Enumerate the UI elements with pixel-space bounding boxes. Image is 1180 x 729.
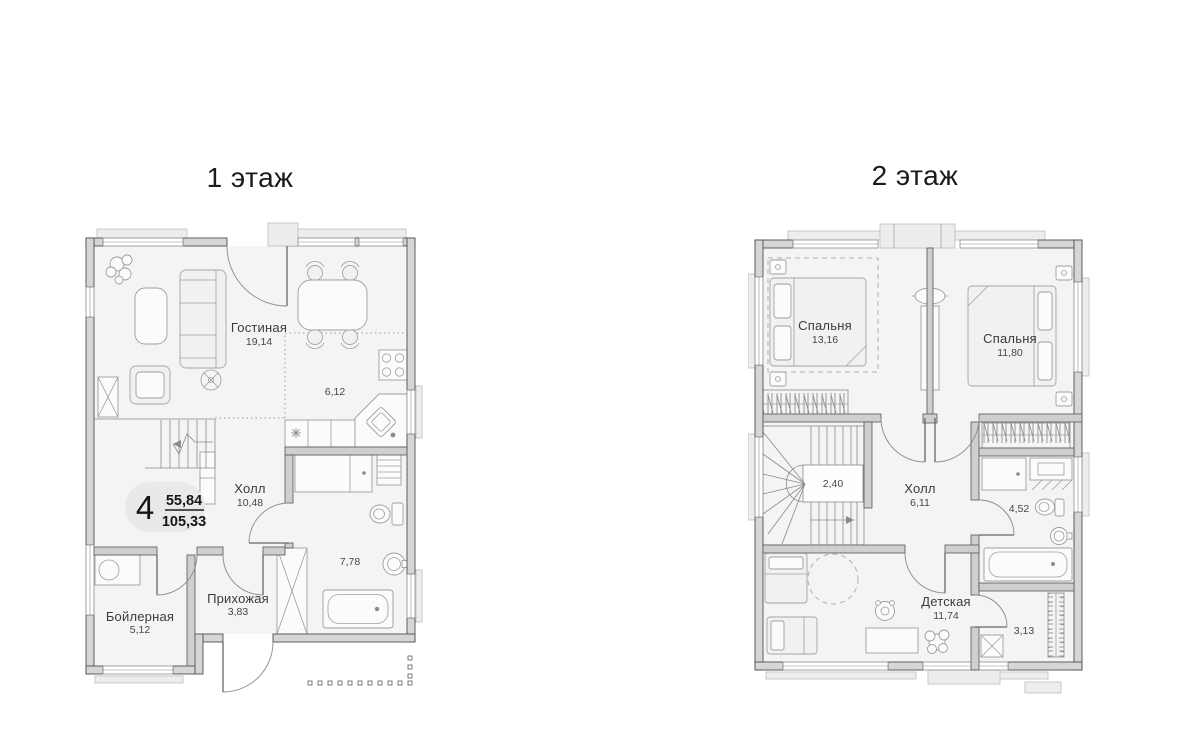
svg-text:Холл: Холл [904, 481, 935, 496]
page: 1 этаж 2 этаж [0, 0, 1180, 729]
wardrobe [98, 377, 118, 417]
svg-text:Холл: Холл [234, 481, 265, 496]
floor1-plan: 4 55,84 105,33 Гостиная 19,14 6,12 Холл … [83, 222, 423, 697]
room-closet-label: 3,13 [1014, 625, 1035, 637]
svg-text:19,14: 19,14 [246, 336, 272, 348]
stove [379, 350, 407, 380]
bed [765, 553, 807, 603]
room-kitchen-label: 6,12 [325, 386, 346, 398]
water-heater [95, 555, 140, 585]
svg-text:Прихожая: Прихожая [207, 591, 269, 606]
wardrobe [981, 635, 1003, 657]
towel-rack [377, 453, 401, 485]
washing-machine-counter [982, 458, 1026, 490]
stool [876, 601, 895, 621]
kitchen-counter [285, 420, 355, 447]
floor1-title: 1 этаж [130, 162, 370, 194]
wardrobe [277, 548, 307, 634]
floor2-plan: Спальня 13,16 Спальня 11,80 2,40 Холл 6,… [748, 222, 1090, 697]
floor2-title: 2 этаж [795, 160, 1035, 192]
svg-text:13,16: 13,16 [812, 334, 838, 346]
sofa [180, 270, 226, 368]
stairs-area-label: 2,40 [823, 478, 844, 490]
svg-text:5,12: 5,12 [130, 624, 151, 636]
bathtub [323, 590, 393, 628]
apartment-badge: 4 55,84 105,33 [125, 482, 206, 532]
bathtub [984, 548, 1072, 581]
svg-text:3,83: 3,83 [228, 606, 249, 618]
chimney [268, 223, 298, 246]
svg-text:Гостиная: Гостиная [231, 320, 287, 335]
desk [866, 628, 918, 653]
room-hall-label: Холл 10,48 [234, 481, 265, 509]
coffee-table [135, 288, 167, 344]
svg-text:11,74: 11,74 [933, 610, 959, 622]
toilet [1036, 499, 1065, 516]
badge-rooms-count: 4 [136, 489, 154, 526]
svg-text:Спальня: Спальня [983, 331, 1037, 346]
hob-icon [291, 428, 301, 438]
porch-dots [308, 656, 412, 685]
svg-text:Детская: Детская [921, 594, 971, 609]
svg-text:10,48: 10,48 [237, 497, 263, 509]
svg-text:6,11: 6,11 [910, 497, 930, 509]
entrance-door [223, 642, 273, 692]
svg-text:11,80: 11,80 [997, 347, 1023, 359]
wardrobe [982, 423, 1070, 448]
svg-text:Бойлерная: Бойлерная [106, 609, 174, 624]
washing-machine-counter [295, 455, 372, 492]
badge-living-area: 55,84 [166, 493, 202, 509]
armchair [130, 366, 170, 404]
badge-total-area: 105,33 [162, 514, 206, 530]
chimney [880, 224, 955, 248]
svg-text:Спальня: Спальня [798, 318, 852, 333]
room-bathroom-label: 4,52 [1009, 503, 1030, 515]
wardrobe [1048, 593, 1064, 657]
bed [767, 617, 817, 654]
room-bathroom-label: 7,78 [340, 556, 361, 568]
